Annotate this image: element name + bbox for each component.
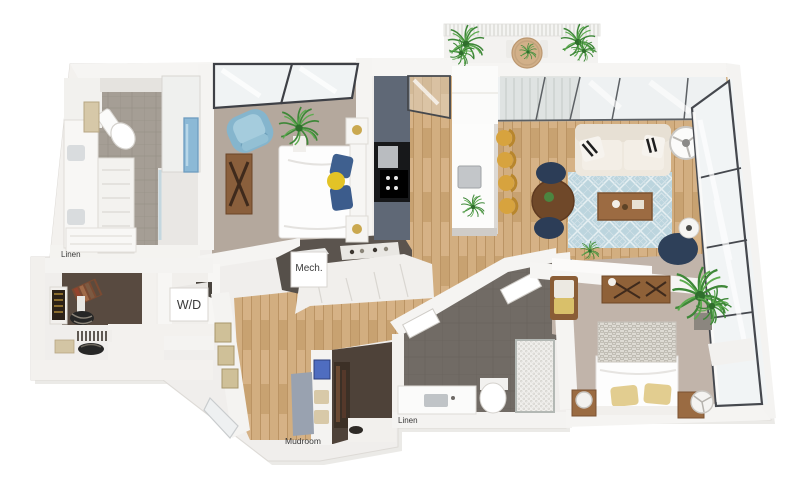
svg-text:Linen: Linen [398, 416, 418, 425]
svg-text:Mech.: Mech. [295, 263, 322, 274]
svg-text:Mudroom: Mudroom [285, 436, 321, 446]
svg-text:W/D: W/D [177, 298, 201, 312]
svg-text:Linen: Linen [61, 250, 81, 259]
